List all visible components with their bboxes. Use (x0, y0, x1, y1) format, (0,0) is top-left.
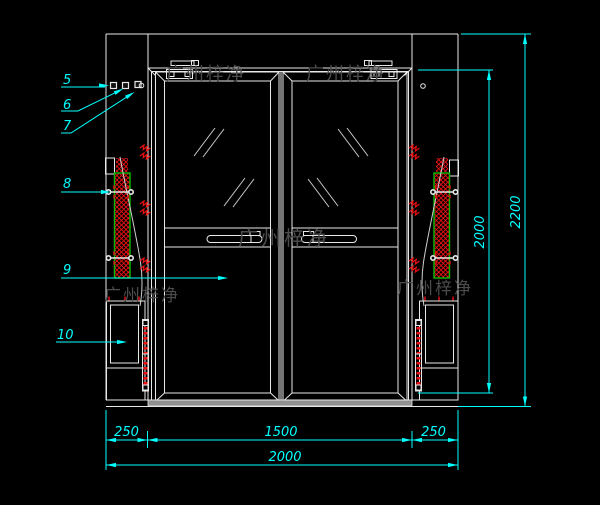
cabinet-structure (106, 34, 458, 407)
dim-2000-width: 2000 (268, 450, 301, 465)
callout-7-label: 7 (63, 119, 72, 134)
dim-250-right: 250 (421, 425, 446, 440)
watermark-bottom-right: 广州梓净 (397, 279, 473, 299)
cad-canvas: 5 6 7 8 9 10 (0, 0, 600, 505)
dim-2000-height: 2000 (473, 215, 488, 248)
blower-box-left (107, 297, 149, 401)
glass-marks-left (194, 128, 254, 207)
callout-5-label: 5 (63, 73, 71, 88)
bottom-dimensions: 250 1500 250 2000 (106, 410, 458, 470)
red-zigzag-marks (140, 145, 419, 272)
left-column-internals (106, 157, 142, 306)
cad-drawing-double-door-elevation: 5 6 7 8 9 10 (0, 0, 600, 505)
callout-8: 8 (61, 177, 111, 194)
dim-1500: 1500 (264, 425, 297, 440)
callout-8-label: 8 (63, 177, 71, 192)
arrowhead (117, 340, 127, 344)
mount-bracket-right (450, 160, 459, 176)
arrowhead (218, 276, 228, 280)
dim-2200-height: 2200 (509, 195, 524, 228)
dim-250-left: 250 (114, 425, 139, 440)
callout-5: 5 (61, 73, 109, 88)
watermark-center: 广州梓净 (238, 226, 330, 250)
callout-9-label: 9 (63, 263, 71, 278)
callout-6: 6 (61, 89, 124, 114)
glass-marks-right (308, 128, 368, 207)
callout-7: 7 (61, 92, 135, 134)
watermark-bottom-left: 广州梓净 (104, 286, 180, 306)
watermark-top-left: 广州梓净 (166, 64, 246, 85)
arrowhead (114, 89, 124, 95)
hinge-strip-right (416, 320, 422, 392)
arrowhead (125, 92, 135, 99)
door-threshold (148, 400, 412, 406)
callout-10: 10 (56, 328, 127, 344)
watermark-top-right: 广州梓净 (306, 64, 386, 85)
pivot-circle-right (421, 84, 426, 89)
callout-10-label: 10 (57, 328, 74, 343)
mount-bracket-left (106, 158, 115, 174)
blower-box-right (416, 297, 459, 401)
top-fastener-squares (111, 82, 142, 89)
